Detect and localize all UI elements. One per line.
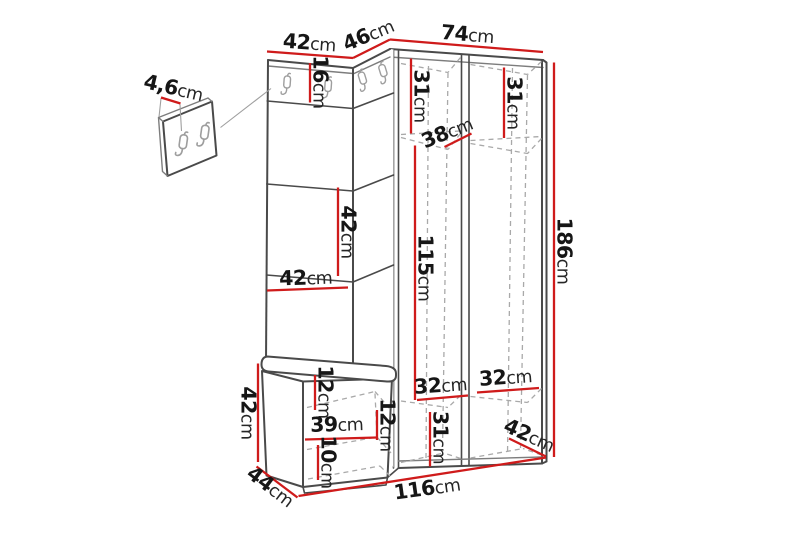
dim-bench-lower-gap: 10cm — [317, 435, 341, 488]
dim-label: 186cm — [553, 218, 577, 285]
dim-bench-height: 42cm — [237, 364, 261, 463]
dim-label: 42cm — [237, 386, 261, 439]
dim-top-wardrobe-width: 74cm — [390, 20, 543, 52]
dim-wall-panel-thickness: 4,6cm — [141, 69, 205, 106]
wall-panel-detail — [159, 98, 217, 176]
dim-label: 42cm — [282, 29, 337, 57]
diagram-canvas: 42cm 46cm 74cm 16cm 4,6cm 31cm 31cm — [0, 0, 800, 533]
dim-bench-upper-gap: 12cm — [314, 365, 338, 418]
dim-right-top-shelf-depth: 31cm — [503, 68, 527, 139]
dim-label: 39cm — [310, 411, 364, 437]
dim-label: 42cm — [279, 265, 333, 291]
dim-left-top-shelf-depth: 31cm — [410, 59, 434, 134]
dim-left-bottom-shelf-depth: 32cm — [413, 371, 468, 400]
dim-label: 116cm — [392, 472, 462, 505]
dim-label: 31cm — [503, 76, 527, 129]
dim-hook-rail-height: 16cm — [309, 55, 333, 108]
dim-label: 10cm — [317, 435, 341, 488]
leader-line — [221, 89, 272, 128]
dim-label: 31cm — [429, 411, 453, 464]
dim-label: 74cm — [440, 20, 495, 48]
dim-total-height: 186cm — [553, 63, 577, 458]
dim-label: 12cm — [376, 398, 400, 451]
dim-label: 12cm — [314, 365, 338, 418]
dim-bottom-section-height: 31cm — [429, 411, 453, 467]
dim-bench-middle-gap: 12cm — [376, 398, 400, 451]
dim-label: 16cm — [309, 55, 333, 108]
dim-label: 115cm — [414, 235, 438, 302]
dim-label: 31cm — [410, 69, 434, 122]
dim-label: 32cm — [478, 363, 533, 391]
dim-label: 42cm — [337, 205, 361, 258]
dim-label: 32cm — [413, 371, 468, 399]
furniture-dimension-diagram: 42cm 46cm 74cm 16cm 4,6cm 31cm 31cm — [0, 0, 800, 533]
